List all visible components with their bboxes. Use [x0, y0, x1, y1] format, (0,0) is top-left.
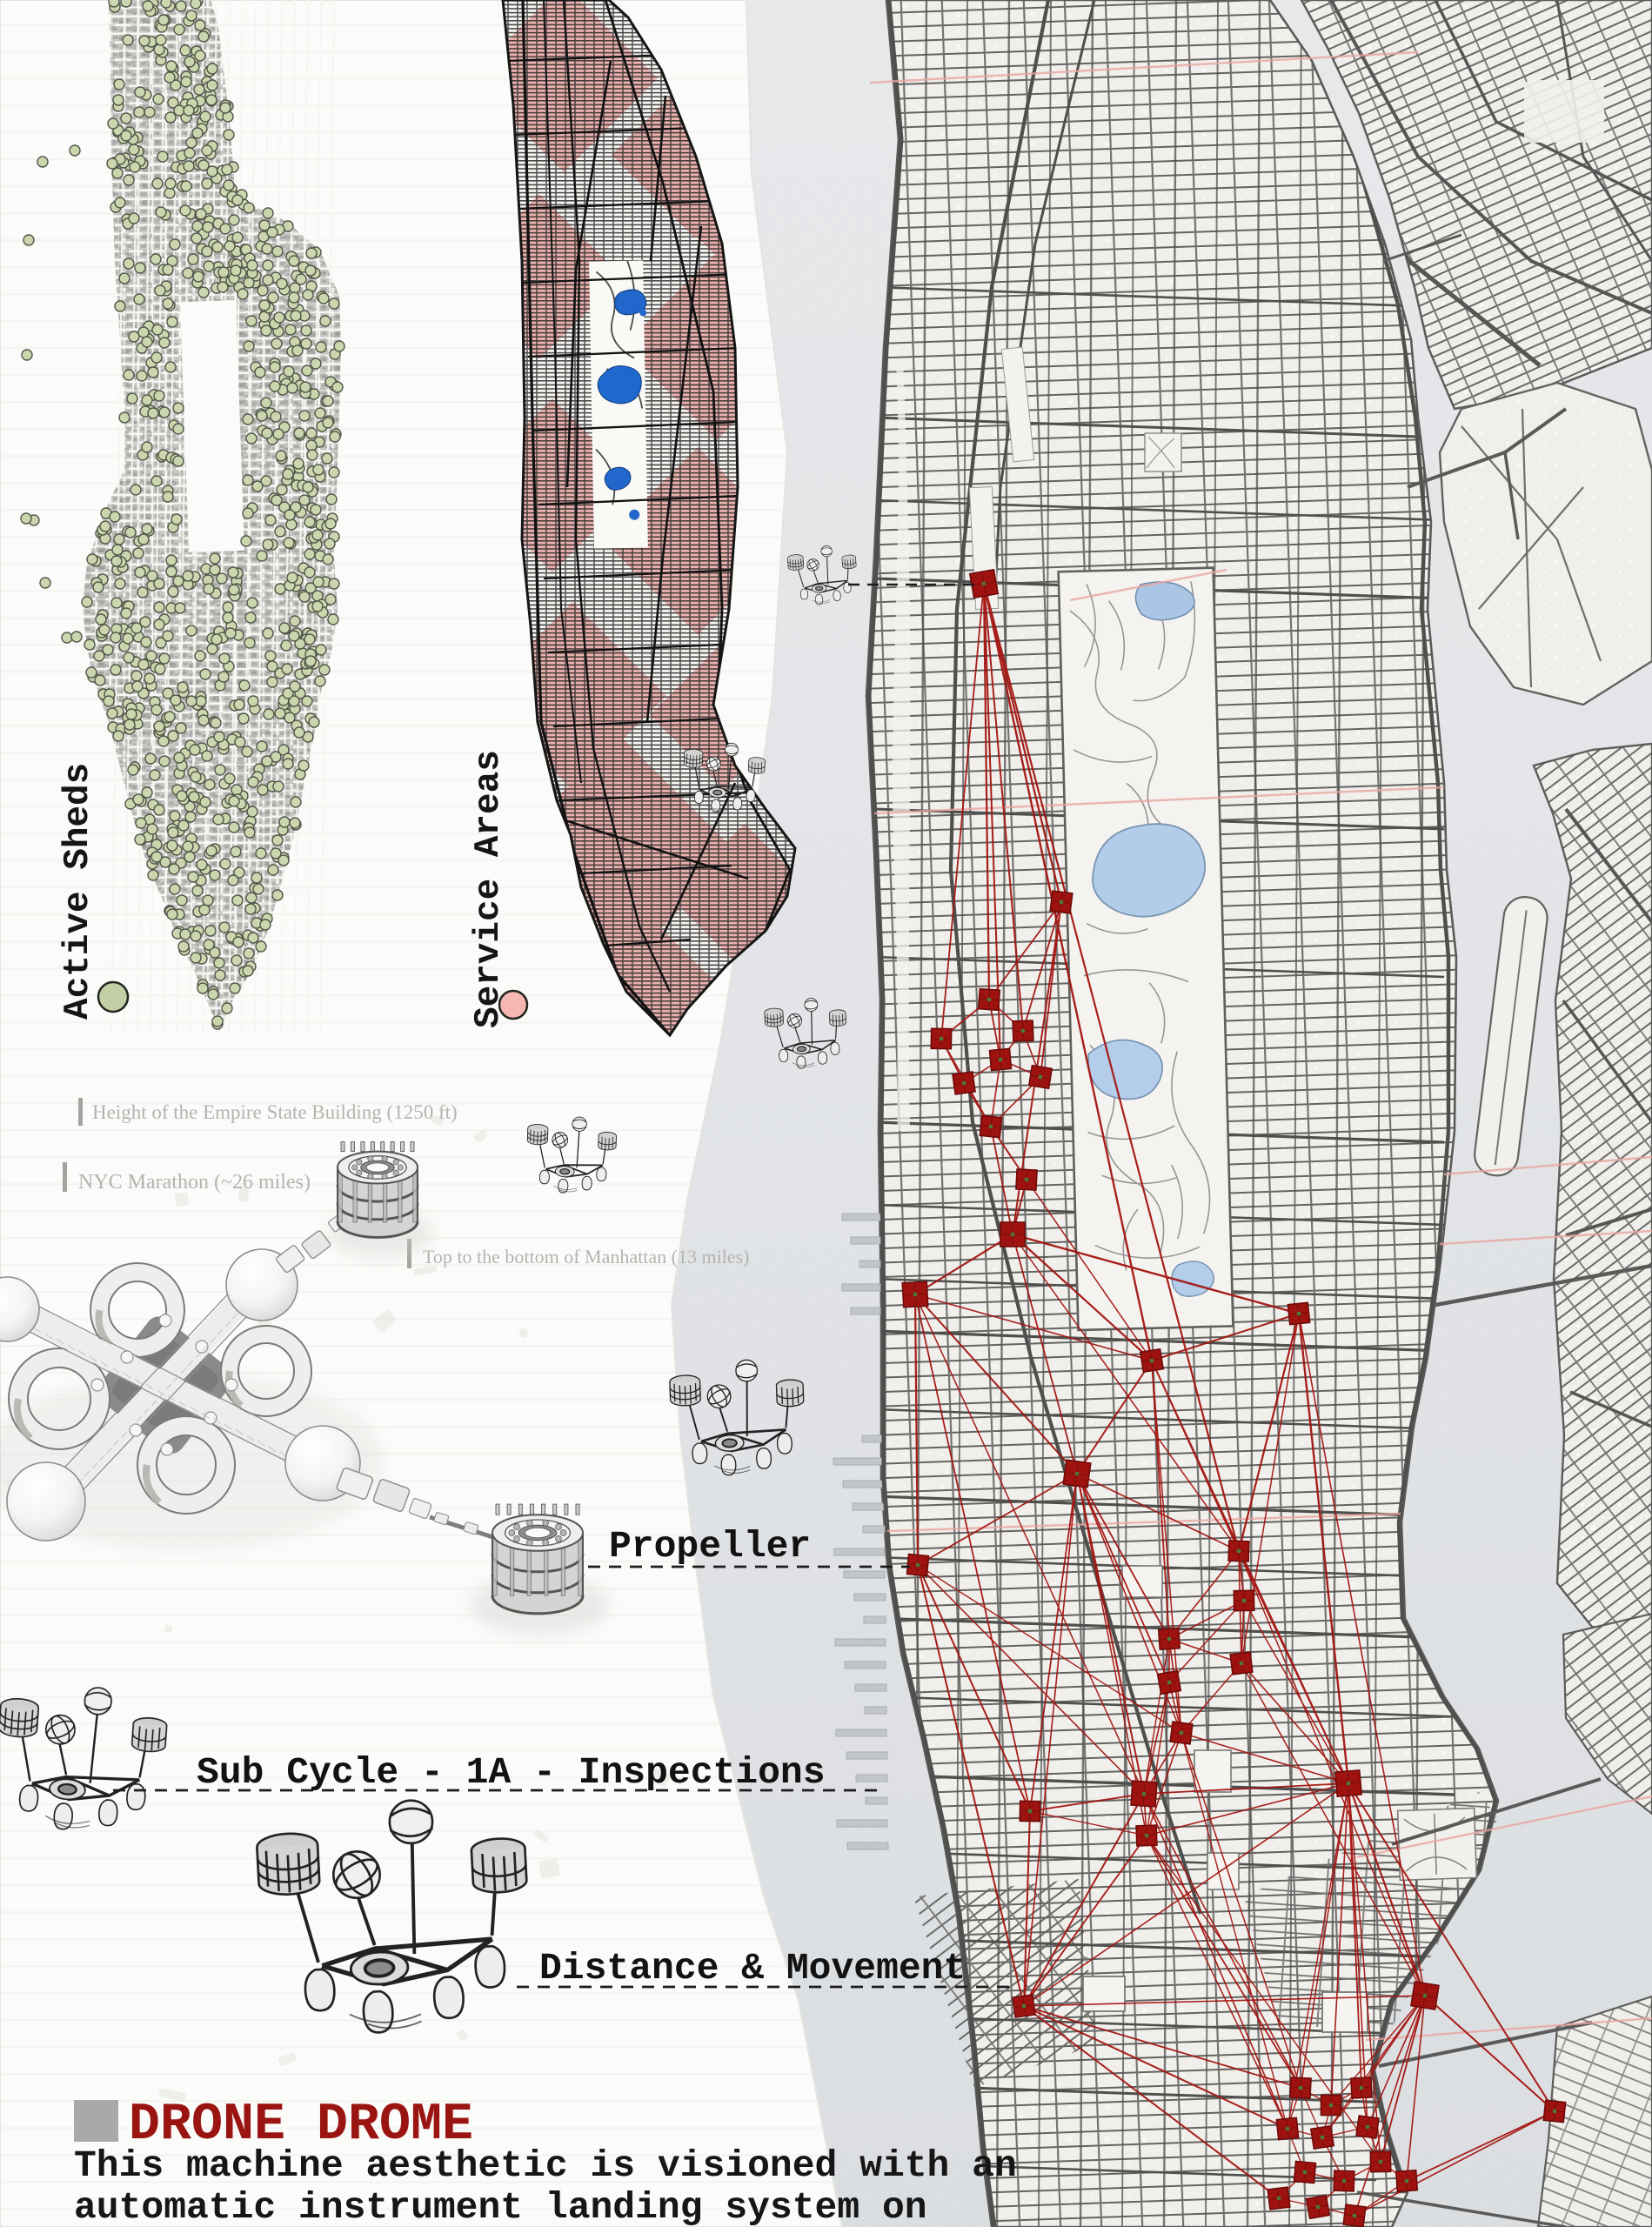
svg-text:Active Sheds: Active Sheds — [58, 763, 98, 1020]
svg-text:NYC Marathon (~26 miles): NYC Marathon (~26 miles) — [78, 1171, 311, 1194]
svg-text:Top to the bottom of Manhattan: Top to the bottom of Manhattan (13 miles… — [423, 1246, 749, 1267]
svg-text:Distance & Movement: Distance & Movement — [539, 1947, 966, 1990]
svg-text:Service Areas: Service Areas — [469, 750, 509, 1028]
svg-text:Propeller: Propeller — [609, 1525, 811, 1568]
svg-text:Height of the Empire State Bui: Height of the Empire State Building (125… — [92, 1101, 458, 1123]
svg-text:automatic instrument landing s: automatic instrument landing system on — [74, 2186, 927, 2227]
svg-text:This machine aesthetic is visi: This machine aesthetic is visioned with … — [74, 2144, 1017, 2187]
svg-text:Sub Cycle - 1A - Inspections: Sub Cycle - 1A - Inspections — [197, 1751, 826, 1794]
